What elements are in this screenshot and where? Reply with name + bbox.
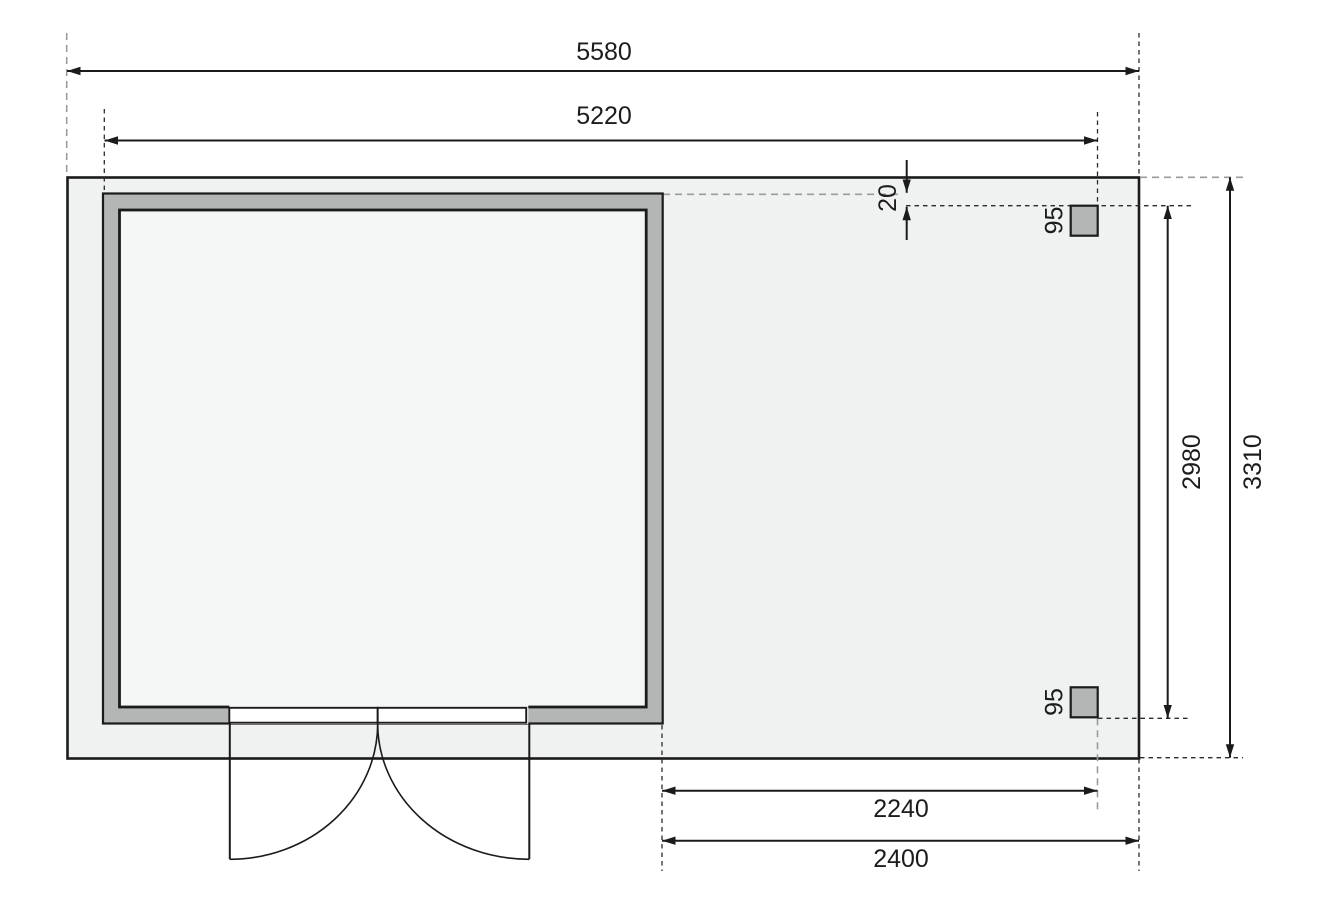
dim-label-right-outer: 3310 bbox=[1239, 434, 1267, 490]
dim-label-bottom-outer: 2400 bbox=[873, 845, 929, 873]
door-leaf-right-closed bbox=[378, 708, 527, 723]
dim-label-right-inner: 2980 bbox=[1178, 434, 1206, 490]
dim-label-bottom-inner: 2240 bbox=[873, 795, 929, 823]
dim-label-top-inner: 5220 bbox=[576, 102, 632, 130]
cabin-interior bbox=[120, 210, 647, 707]
door-leaf-left-closed bbox=[229, 708, 377, 723]
dim-label-gap: 20 bbox=[874, 184, 902, 212]
dim-label-top-outer: 5580 bbox=[576, 38, 632, 66]
dim-label-post-top: 95 bbox=[1041, 207, 1069, 235]
floor-plan-canvas: 5580 5220 2240 2400 20 95 95 2980 3310 bbox=[0, 0, 1326, 897]
floor-plan-drawing: 5580 5220 2240 2400 20 95 95 2980 3310 bbox=[0, 0, 1326, 897]
post-top bbox=[1071, 206, 1098, 236]
dim-label-post-bottom: 95 bbox=[1041, 688, 1069, 716]
post-bottom bbox=[1071, 687, 1098, 717]
